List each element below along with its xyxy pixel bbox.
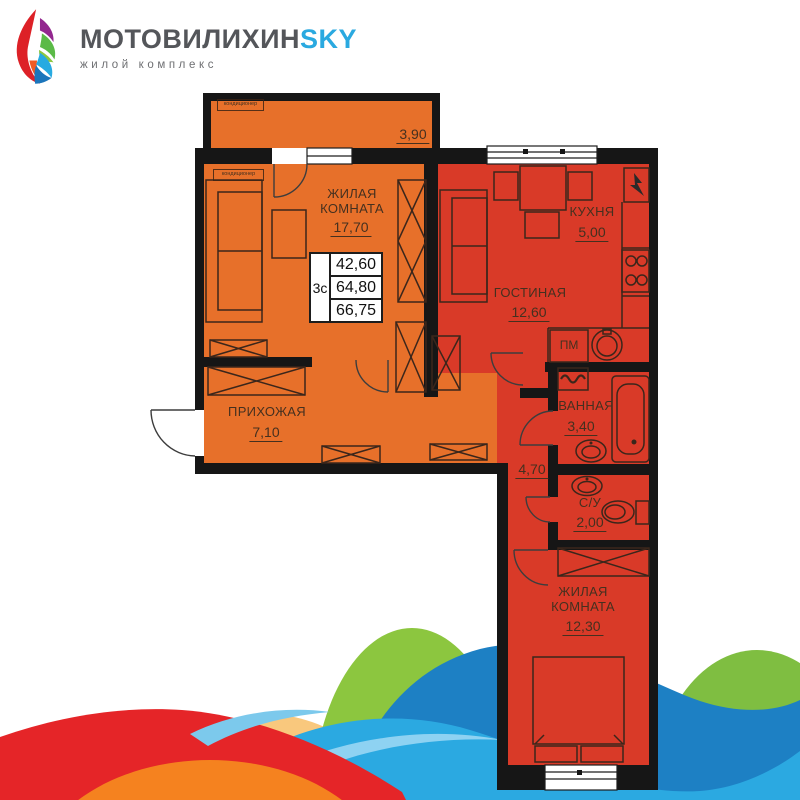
hall-label: ПРИХОЖАЯ [228, 404, 306, 419]
flat-type-cell: 3с [309, 252, 331, 323]
livingroom1-label-line2: КОМНАТА [320, 201, 384, 216]
area-main-cell: 64,80 [329, 275, 383, 300]
kitchen-label: КУХНЯ [570, 204, 615, 219]
ac-unit-label-balcony: кондиционер [217, 99, 264, 111]
balcony-area-label: 3,90 [396, 126, 429, 144]
area-total-cell: 66,75 [329, 298, 383, 323]
livingroom2-area-label: 12,30 [562, 618, 603, 636]
kitchen-window [487, 146, 597, 164]
lounge-label: ГОСТИНАЯ [494, 285, 567, 300]
lounge-kitchen-fill [438, 164, 649, 373]
livingroom2-label-line1: ЖИЛАЯ [558, 584, 607, 599]
bedroom-window [545, 765, 617, 790]
area-living-cell: 42,60 [329, 252, 383, 277]
entry-door [151, 410, 195, 456]
wc-label: С/У [579, 495, 601, 510]
bathroom-label: ВАННАЯ [558, 398, 614, 413]
bathroom-area-label: 3,40 [564, 418, 597, 436]
livingroom1-label-line1: ЖИЛАЯ [327, 186, 376, 201]
lounge-area-label: 12,60 [508, 304, 549, 322]
floor-plan [0, 0, 800, 800]
kitchen-area-label: 5,00 [575, 224, 608, 242]
wc-area-label: 2,00 [573, 514, 606, 532]
livingroom2-label-line2: КОМНАТА [551, 599, 615, 614]
washing-machine-label: ПМ [560, 338, 579, 352]
livingroom1-area-label: 17,70 [330, 219, 371, 237]
corridor-area-label: 4,70 [515, 461, 548, 479]
flat-plan-page: МОТОВИЛИХИНSKY жилой комплекс 3с 42,60 6… [0, 0, 800, 800]
ac-unit-label-room: кондиционер [213, 169, 264, 181]
hall-area-label: 7,10 [249, 424, 282, 442]
